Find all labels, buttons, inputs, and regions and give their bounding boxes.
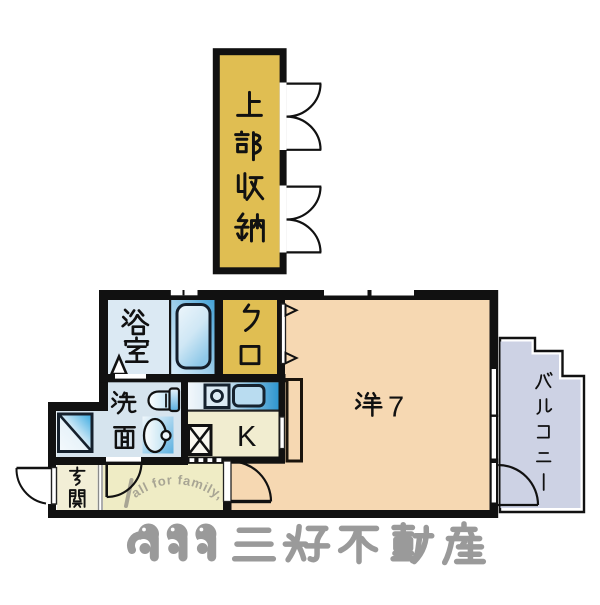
svg-text:K: K <box>237 421 257 453</box>
svg-text:7: 7 <box>388 392 404 424</box>
